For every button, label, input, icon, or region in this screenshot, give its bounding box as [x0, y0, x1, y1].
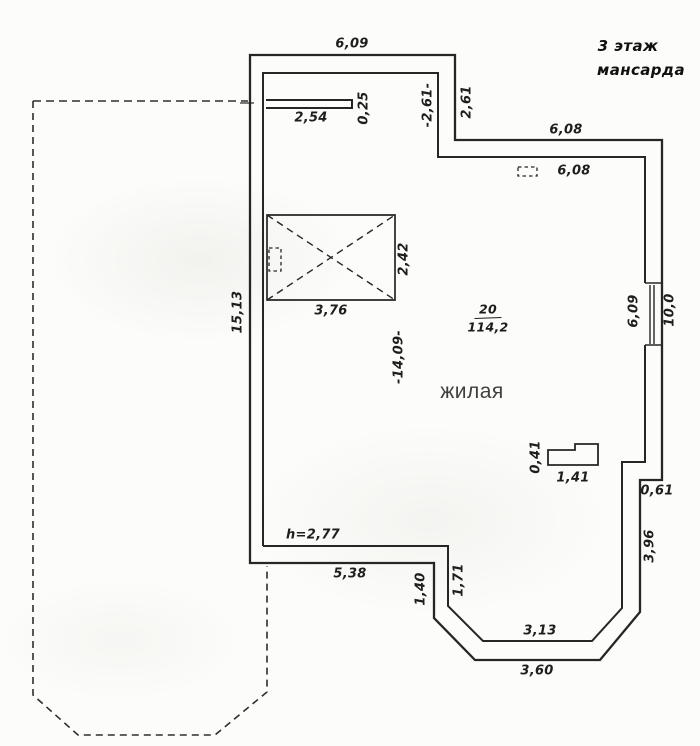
dim-top-wall: 6,09 — [335, 37, 368, 52]
dim-bottom-inner-wall: 5,38 — [333, 567, 366, 582]
dim-bay-left-vertical: 1,40 — [414, 572, 429, 605]
dim-opening-width: 3,76 — [314, 304, 347, 319]
dim-wall-step: 0,61 — [640, 484, 673, 499]
dim-bay-bottom-outer: 3,60 — [520, 664, 553, 679]
dim-stub-length: 2,54 — [294, 111, 327, 126]
dim-duct-width: 1,41 — [556, 471, 589, 486]
dim-window-left: 6,09 — [627, 294, 642, 327]
room-number-area: 20 114,2 — [467, 302, 508, 335]
dim-upper-wall-inner: 6,08 — [557, 164, 590, 179]
dim-opening-height: 2,42 — [397, 242, 412, 275]
stair-opening — [267, 215, 395, 300]
dim-room-width: -14,09- — [392, 330, 407, 384]
window — [645, 283, 662, 345]
room-number: 20 — [479, 302, 497, 317]
partition-stub — [266, 100, 352, 108]
vent-symbol-vertical — [269, 248, 281, 271]
vent-symbol-horizontal — [518, 167, 537, 176]
dim-bay-bottom-inner: 3,13 — [523, 624, 556, 639]
plan-drawing — [0, 0, 700, 746]
room-name: жилая — [440, 380, 504, 404]
stair-opening-diagonals — [267, 215, 395, 300]
dim-ceiling-height: h=2,77 — [286, 528, 340, 543]
window-glazing — [650, 285, 654, 344]
floor-title-line2: мансарда — [597, 61, 685, 79]
dim-notch-right: 2,61 — [460, 85, 475, 118]
dim-stub-thickness: 0,25 — [357, 91, 372, 124]
duct-block — [548, 444, 598, 465]
dim-upper-wall-outer: 6,08 — [549, 123, 582, 138]
dim-window-right: 10,0 — [663, 293, 678, 326]
dim-right-lower-wall: 3,96 — [643, 529, 658, 562]
room-area: 114,2 — [467, 320, 508, 335]
floor-title-line1: 3 этаж — [598, 37, 659, 55]
floor-plan: 3 этаж мансарда 6,09 2,54 6,08 6,08 3,76… — [0, 0, 700, 746]
dim-bay-left-diagonal: 1,71 — [452, 563, 467, 596]
dim-left-wall: 15,13 — [231, 291, 246, 334]
dim-notch-left: -2,61- — [421, 83, 436, 128]
dim-duct-height: 0,41 — [529, 440, 544, 473]
terrace-outline-dashed — [33, 101, 267, 735]
